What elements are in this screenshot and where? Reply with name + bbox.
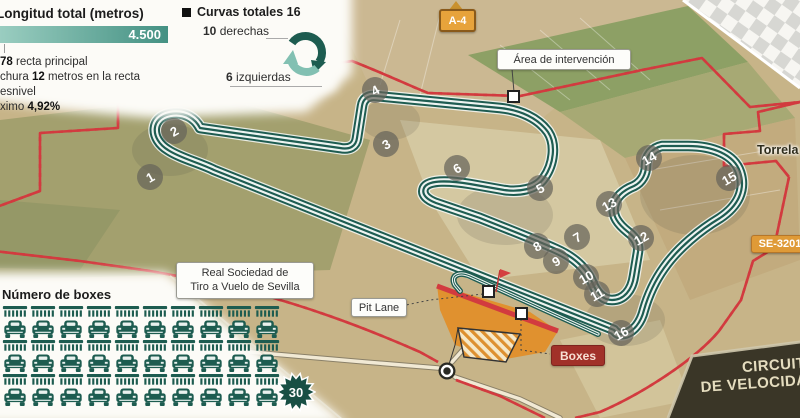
curve-marker-2: 2: [156, 113, 192, 149]
pit-lane-label: Pit Lane: [351, 298, 407, 317]
note-maximo: ximo 4,92%: [0, 100, 140, 115]
rotation-arrows-icon: [279, 28, 331, 80]
curve-marker-1: 1: [132, 159, 168, 195]
izquierdas-connector: [230, 86, 322, 87]
boxes-label: Boxes: [551, 345, 605, 366]
curve-marker-14: 14: [631, 140, 667, 176]
curve-marker-7: 7: [559, 219, 595, 255]
longitud-bar-value: 4.500: [128, 27, 161, 42]
garage-icon: [226, 340, 252, 373]
boxes-title: Número de boxes: [2, 287, 111, 302]
torrela-place-label: Torrela: [757, 143, 798, 157]
a4-road-sign: A-4: [439, 9, 476, 32]
curve-marker-3: 3: [368, 126, 404, 162]
curvas-title: Curvas totales 16: [182, 5, 301, 19]
curve-marker-15: 15: [711, 160, 747, 196]
curvas-right-count: 10 derechas: [203, 24, 269, 38]
garage-icon: [2, 374, 28, 407]
note-desnivel: esnivel: [0, 85, 140, 100]
garage-icon: [30, 306, 56, 339]
garage-icon: [198, 340, 224, 373]
real-sociedad-line2: Tiro a Vuelo de Sevilla: [190, 281, 299, 295]
garage-icon: [58, 340, 84, 373]
garage-icon: [2, 340, 28, 373]
note-recta: 78 recta principal: [0, 55, 140, 70]
curve-marker-4: 4: [357, 72, 393, 108]
garage-icon: [86, 374, 112, 407]
garage-icon: [142, 374, 168, 407]
garage-icon: [86, 306, 112, 339]
curve-marker-12: 12: [623, 220, 659, 256]
area-intervencion-label: Área de intervención: [497, 49, 631, 70]
garage-icon: [254, 306, 280, 339]
garage-icon: [114, 306, 140, 339]
longitud-bar: 4.500: [0, 26, 168, 43]
garage-icon: [226, 306, 252, 339]
garage-icon: [2, 306, 28, 339]
circuit-title: CIRCUITO DE VELOCIDAD: [699, 354, 800, 396]
starburst-badge: 30: [276, 372, 316, 412]
garage-icon: [86, 340, 112, 373]
longitud-bracket: [4, 44, 5, 53]
garage-icon: [170, 374, 196, 407]
longitud-title: Longitud total (metros): [0, 6, 144, 21]
starburst-value: 30: [289, 385, 303, 400]
garage-row: [2, 374, 280, 407]
garage-row: [2, 306, 280, 339]
garage-icon: [142, 306, 168, 339]
curve-marker-16: 16: [603, 315, 639, 351]
square-bullet-icon: [182, 8, 191, 17]
curve-marker-13: 13: [591, 186, 627, 222]
longitud-notes: 78 recta principal chura 12 metros en la…: [0, 55, 140, 115]
garage-icon: [114, 340, 140, 373]
infographic-stage: 12345678910111213141516 Longitud total (…: [0, 0, 800, 418]
garage-icon: [254, 340, 280, 373]
garage-icon: [58, 306, 84, 339]
curve-marker-5: 5: [522, 170, 558, 206]
se3201-road-sign: SE-3201: [751, 235, 800, 253]
garage-row: [2, 340, 280, 373]
garage-icon: [198, 306, 224, 339]
garage-icon: [58, 374, 84, 407]
garage-icon: [170, 340, 196, 373]
garage-icon: [30, 340, 56, 373]
real-sociedad-label: Real Sociedad de Tiro a Vuelo de Sevilla: [176, 262, 314, 299]
garage-icon: [226, 374, 252, 407]
garage-icon: [30, 374, 56, 407]
curve-marker-6: 6: [439, 150, 475, 186]
note-anchura: chura 12 metros en la recta: [0, 70, 140, 85]
garage-icon: [114, 374, 140, 407]
real-sociedad-line1: Real Sociedad de: [190, 267, 299, 281]
garage-icon: [142, 340, 168, 373]
garage-icon: [170, 306, 196, 339]
garage-icon: [198, 374, 224, 407]
